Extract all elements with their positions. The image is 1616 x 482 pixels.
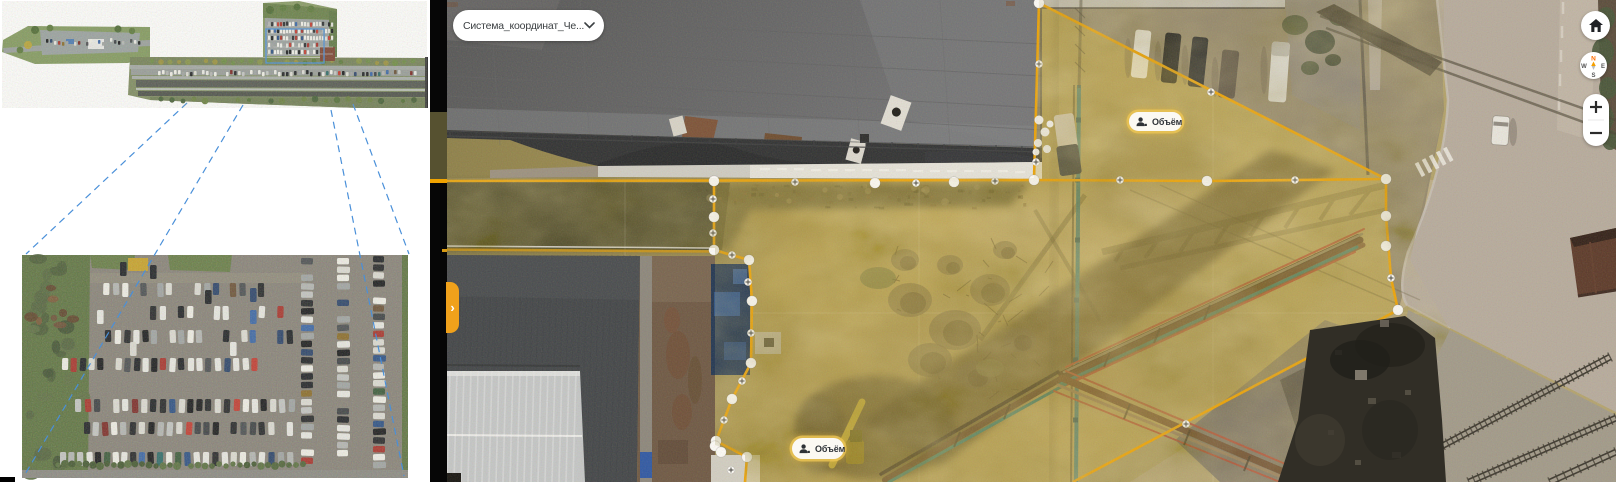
svg-text:E: E bbox=[1601, 64, 1605, 70]
svg-text:W: W bbox=[1581, 64, 1587, 70]
svg-text:N: N bbox=[1591, 56, 1596, 63]
svg-text:S: S bbox=[1591, 73, 1595, 79]
